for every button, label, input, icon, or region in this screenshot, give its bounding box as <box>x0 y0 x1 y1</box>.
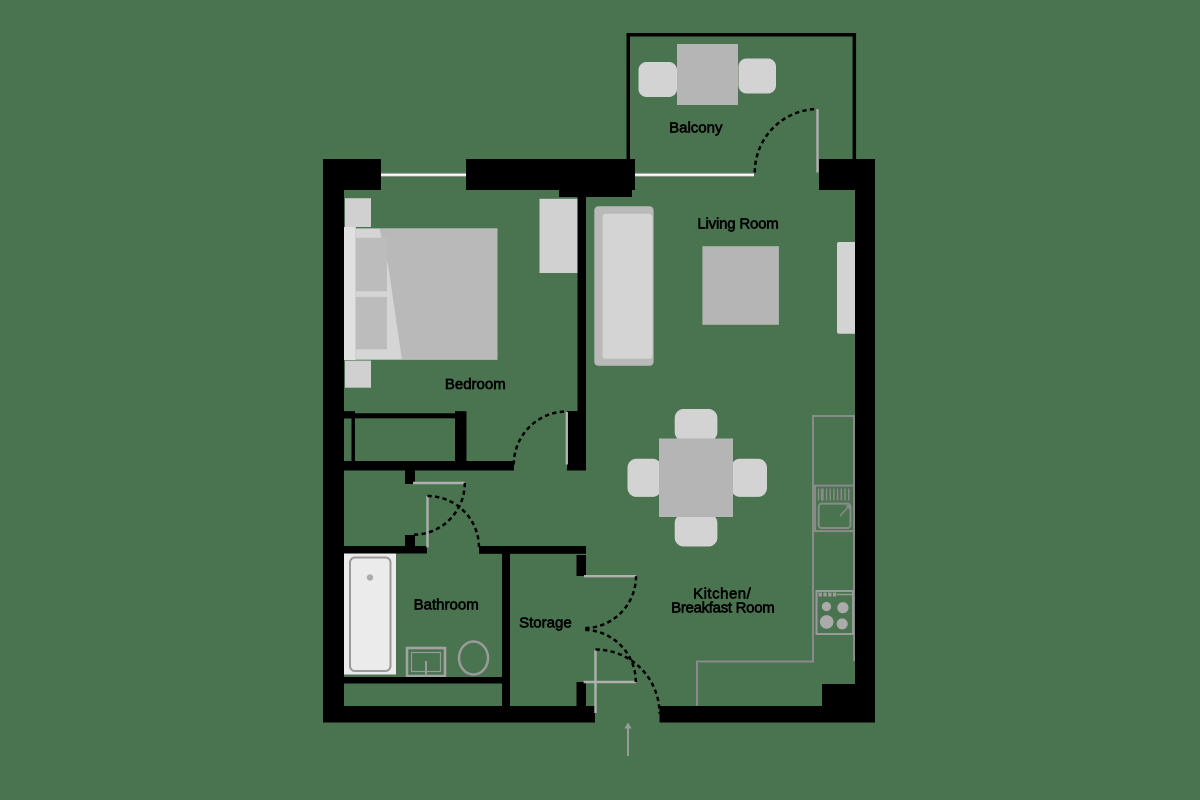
svg-text:Living Room: Living Room <box>697 216 778 233</box>
svg-text:Bedroom: Bedroom <box>445 376 506 393</box>
svg-text:Storage: Storage <box>519 615 572 632</box>
svg-text:Balcony: Balcony <box>669 120 723 137</box>
svg-text:Bathroom: Bathroom <box>414 597 479 614</box>
svg-text:Breakfast Room: Breakfast Room <box>671 599 774 616</box>
